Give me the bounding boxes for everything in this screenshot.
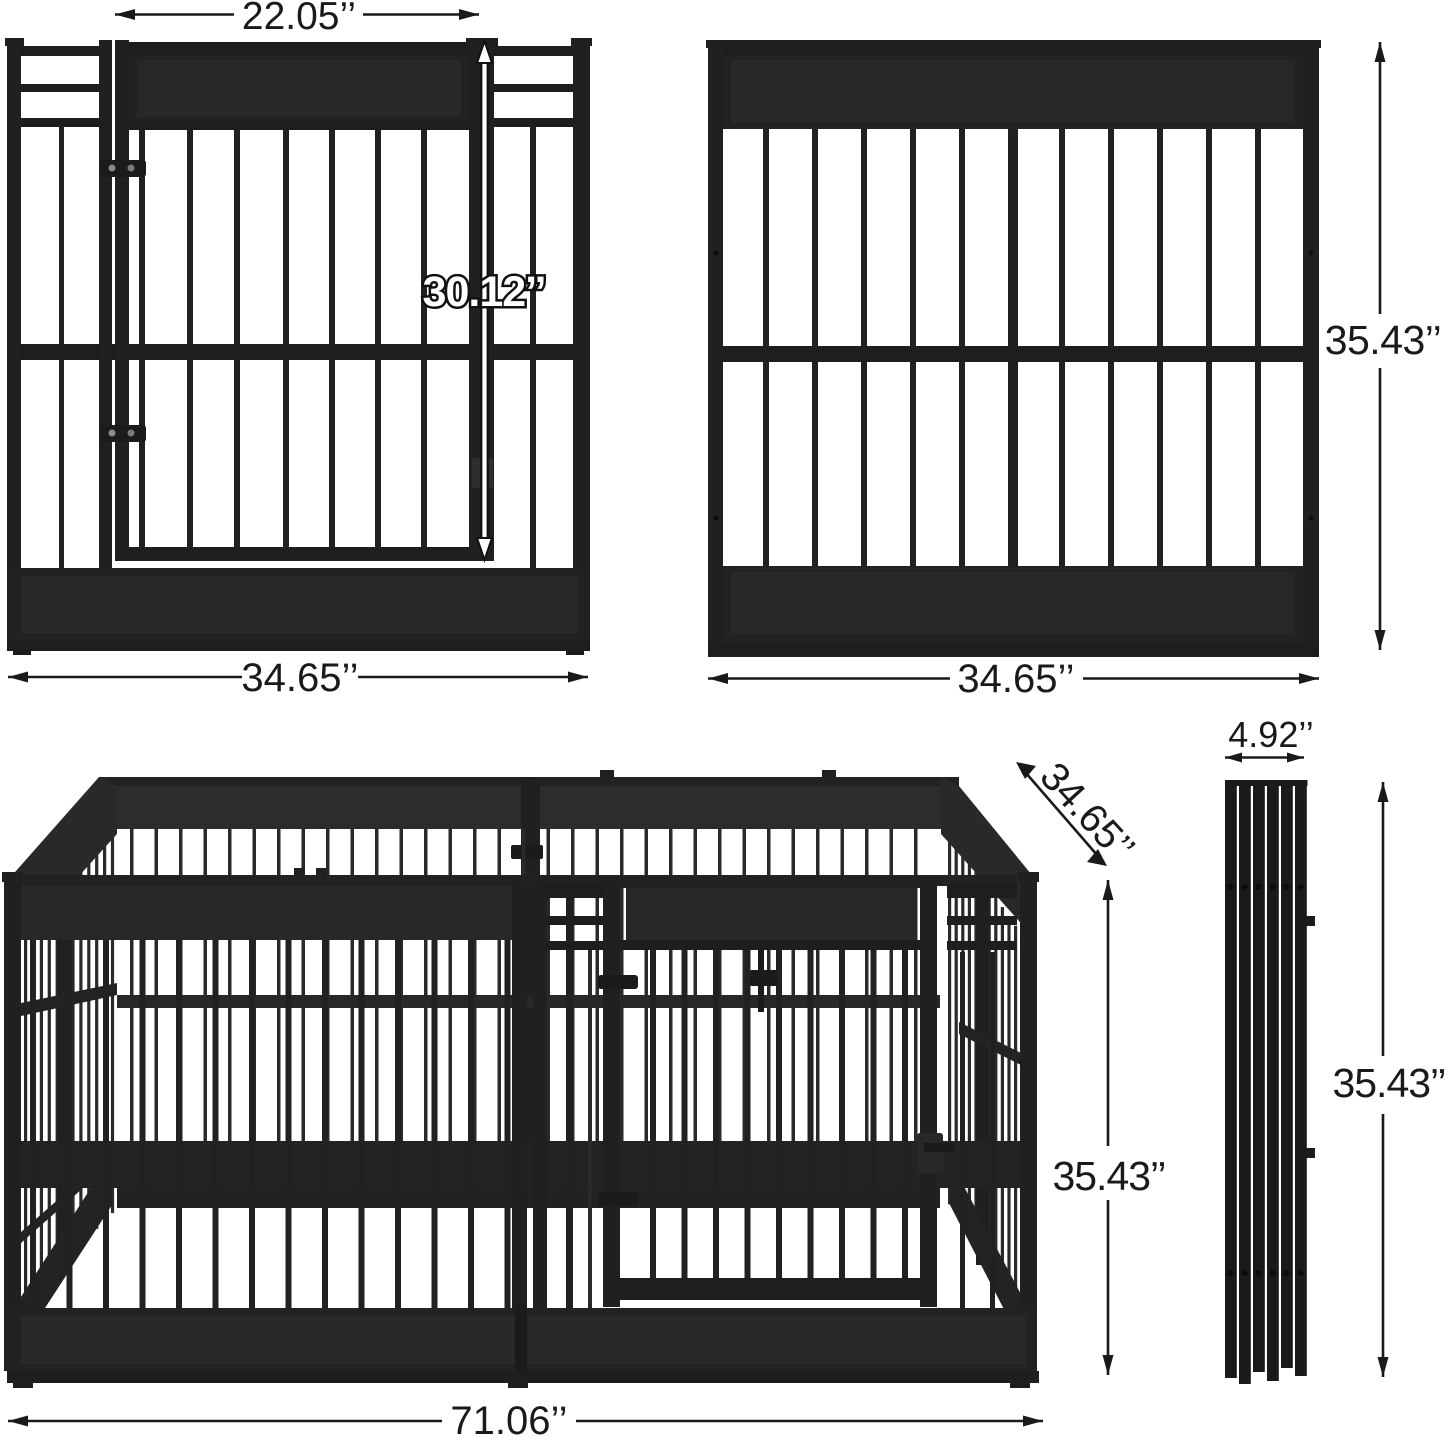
svg-text:34.65’’: 34.65’’ <box>241 656 358 700</box>
svg-text:35.43’’: 35.43’’ <box>1052 1153 1165 1199</box>
svg-text:30.12’’: 30.12’’ <box>423 268 546 316</box>
svg-text:71.06’’: 71.06’’ <box>450 1399 567 1440</box>
svg-text:4.92’’: 4.92’’ <box>1228 714 1313 755</box>
svg-text:22.05’’: 22.05’’ <box>242 0 356 38</box>
svg-text:35.43’’: 35.43’’ <box>1332 1060 1445 1106</box>
svg-text:34.65’’: 34.65’’ <box>957 657 1074 701</box>
svg-text:35.43’’: 35.43’’ <box>1325 317 1442 363</box>
